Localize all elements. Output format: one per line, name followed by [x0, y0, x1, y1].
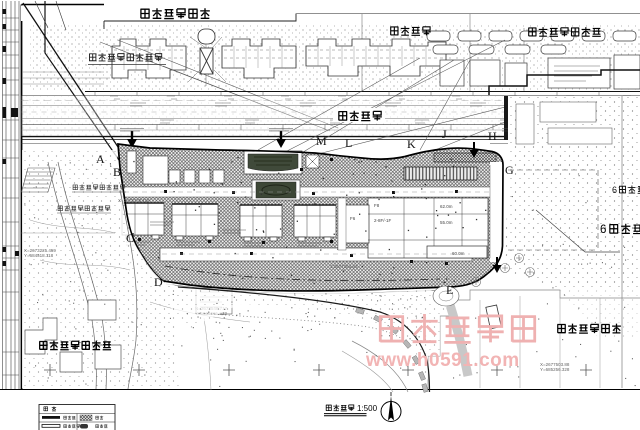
svg-text:F6: F6: [350, 216, 356, 221]
svg-text:2-8F/-1F: 2-8F/-1F: [374, 218, 392, 223]
svg-text:60.0m: 60.0m: [452, 251, 465, 256]
svg-text:H: H: [488, 129, 497, 143]
svg-text:D: D: [154, 275, 163, 289]
svg-text:M: M: [316, 134, 327, 148]
svg-text:X=2673375.118: X=2673375.118: [118, 198, 150, 203]
svg-text:6: 6: [600, 224, 606, 236]
svg-text:C: C: [126, 231, 134, 245]
svg-text:www.h0591.com: www.h0591.com: [365, 350, 520, 371]
svg-text:62.0m: 62.0m: [440, 204, 453, 209]
svg-text:1:2677264.63: 1:2677264.63: [330, 264, 358, 269]
svg-text:K: K: [407, 137, 416, 151]
svg-text:F8: F8: [374, 203, 380, 208]
svg-text:J: J: [442, 127, 447, 141]
svg-text:6: 6: [612, 185, 617, 195]
svg-text:1:500: 1:500: [357, 404, 378, 413]
svg-text:L: L: [345, 136, 352, 150]
svg-text:B: B: [113, 165, 121, 179]
svg-text:Y=685256.328: Y=685256.328: [540, 367, 570, 372]
svg-text:A: A: [96, 152, 105, 166]
svg-text:G: G: [505, 163, 514, 177]
svg-text:55.0m: 55.0m: [440, 220, 453, 225]
svg-text:Y=684518.118: Y=684518.118: [24, 253, 54, 258]
